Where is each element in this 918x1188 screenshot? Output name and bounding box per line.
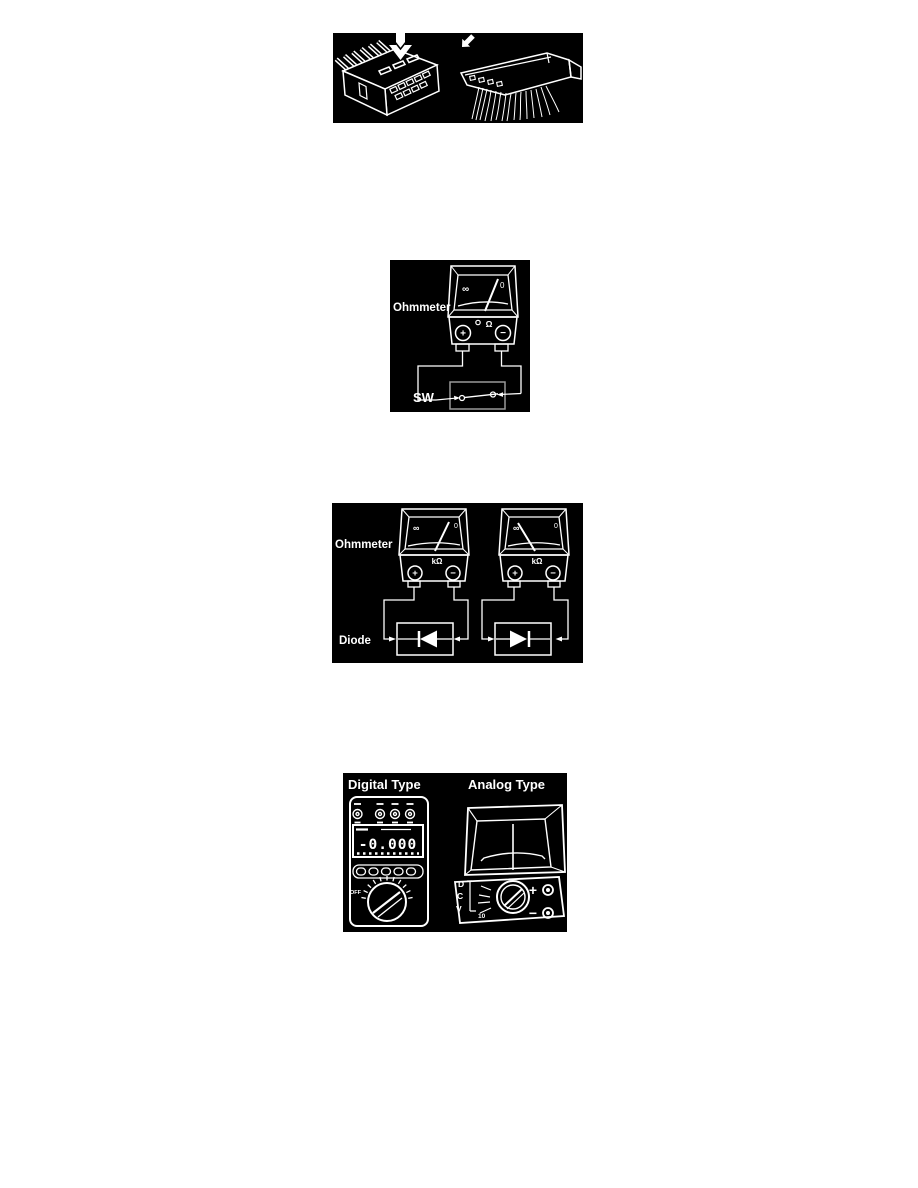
ohmmeter-label: Ohmmeter — [335, 539, 393, 551]
down-left-arrow-icon — [462, 34, 475, 47]
diode-box-reverse — [488, 623, 562, 655]
figure-multimeter-types: Digital Type Analog Type — [343, 773, 567, 932]
range-10-label: 10 — [478, 913, 486, 920]
scale-infinity: ∞ — [513, 523, 520, 533]
figure-switch-continuity-test: Ohmmeter ∞ 0 Ω + − — [390, 260, 530, 412]
minus-sign: − — [550, 568, 556, 579]
input-jacks — [353, 804, 415, 823]
meter-needle — [518, 523, 535, 551]
probe-arrow-right — [497, 392, 521, 397]
figure-diode-test: Ohmmeter Diode ∞ 0 kΩ + − — [332, 503, 583, 663]
ohmmeter-forward-drawing — [399, 509, 469, 587]
dial-off-label: OFF — [350, 890, 362, 896]
ohmmeter-drawing — [448, 266, 518, 351]
test-leads — [384, 587, 568, 639]
kohm-unit: kΩ — [532, 557, 543, 566]
ohm-unit: Ω — [486, 319, 493, 329]
kohm-unit: kΩ — [432, 557, 443, 566]
plus-sign: + — [512, 568, 518, 579]
switch-drawing — [436, 382, 521, 409]
plus-sign: + — [529, 882, 537, 898]
scale-infinity: ∞ — [462, 284, 469, 295]
figure-connector-inspection — [333, 33, 583, 123]
scale-zero: 0 — [500, 281, 505, 290]
minus-sign: − — [500, 328, 506, 339]
scale-infinity: ∞ — [413, 523, 420, 533]
diode-label: Diode — [339, 635, 371, 647]
ohmmeter-label: Ohmmeter — [393, 302, 451, 314]
minus-sign: − — [529, 905, 537, 921]
terminal-posts — [543, 885, 553, 918]
ohmmeter-reverse-drawing — [499, 509, 569, 587]
probe-arrow-left — [436, 396, 460, 401]
diode-box-forward — [389, 623, 460, 655]
letter-d: D — [458, 879, 464, 889]
male-connector-drawing — [336, 42, 439, 115]
letter-c: C — [457, 891, 463, 901]
analog-type-title: Analog Type — [468, 777, 545, 792]
letter-v: V — [456, 904, 462, 914]
digital-type-title: Digital Type — [348, 777, 421, 792]
meter-needle — [485, 279, 498, 311]
plus-sign: + — [412, 568, 418, 579]
lcd-readout: -0.000 — [359, 837, 417, 853]
minus-sign: − — [450, 568, 456, 579]
selector-knob — [497, 881, 529, 913]
analog-multimeter-drawing — [455, 805, 565, 923]
diode-symbol-left — [420, 631, 437, 648]
scale-zero: 0 — [454, 523, 458, 530]
digital-multimeter-drawing — [350, 797, 428, 926]
diode-symbol-right — [510, 631, 527, 648]
rotary-dial — [361, 876, 412, 921]
scale-zero: 0 — [554, 523, 558, 530]
button-row — [353, 865, 423, 878]
switch-label: SW — [413, 390, 435, 405]
range-bracket — [467, 881, 491, 913]
meter-needle — [435, 522, 449, 551]
harness-connector-drawing — [461, 53, 581, 121]
plus-sign: + — [460, 329, 466, 340]
